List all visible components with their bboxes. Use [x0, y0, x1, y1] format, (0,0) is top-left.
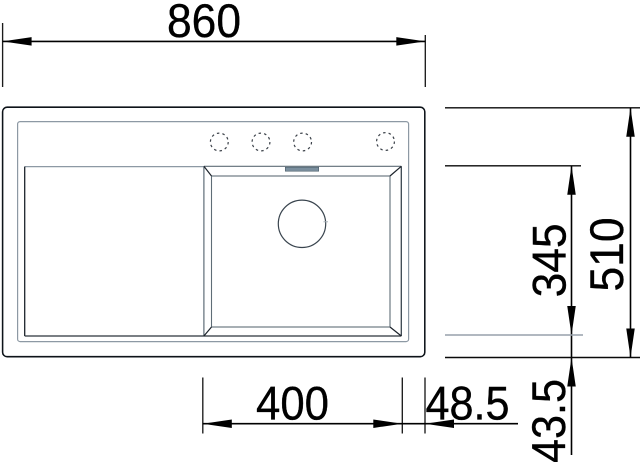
svg-text:400: 400 — [256, 377, 329, 430]
svg-text:345: 345 — [523, 223, 576, 297]
svg-text:510: 510 — [580, 218, 633, 292]
svg-text:860: 860 — [167, 0, 241, 47]
svg-text:48.5: 48.5 — [426, 377, 510, 430]
svg-text:43.5: 43.5 — [522, 379, 575, 462]
